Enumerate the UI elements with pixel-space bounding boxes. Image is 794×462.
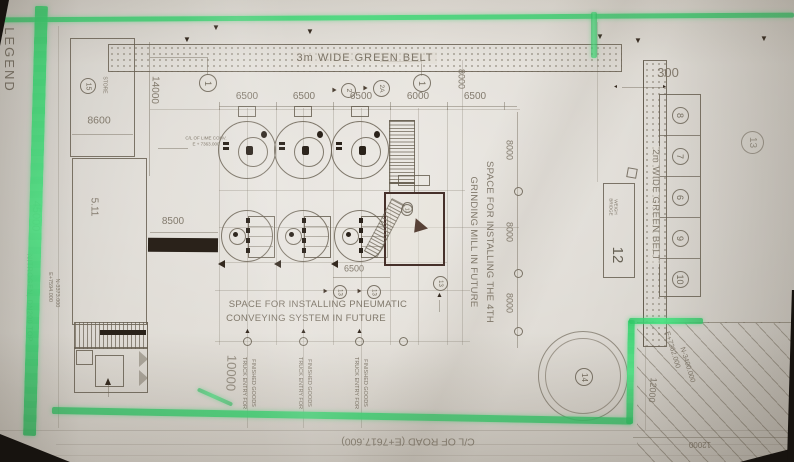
dimension-node: [243, 337, 252, 346]
mill-feed-box: [238, 106, 256, 117]
boundary-highlight-step-horizontal: [629, 318, 703, 324]
pneumatic-space-line1: SPACE FOR INSTALLING PNEUMATIC: [229, 300, 407, 310]
tag-label: 13: [400, 205, 415, 215]
boundary-highlight-top: [0, 13, 794, 23]
dimension-node: [355, 337, 364, 346]
mill-inner-circle: [294, 137, 324, 167]
equipment-skid: [248, 216, 275, 258]
grid-line: [150, 109, 520, 110]
tag-label: 13: [433, 277, 448, 290]
skid-mount: [302, 238, 306, 243]
skid-mount: [359, 228, 363, 233]
dimension-line: [150, 232, 218, 233]
dimension-tick: [390, 102, 391, 110]
plot-cell-number: 9: [672, 230, 689, 247]
dim-8500: 8500: [162, 217, 184, 228]
dim-bay: 6500: [350, 92, 372, 103]
green-belt-right-label: 2m WIDE GREEN BELT: [650, 146, 660, 264]
conveyor-centerline-label: C/L OF LIME CONV.: [185, 137, 226, 142]
tag-bubble: 13: [741, 131, 764, 154]
mill-nozzle: [317, 131, 323, 138]
dim-8000: 8000: [504, 222, 513, 242]
mill-feed-mark: [279, 142, 285, 145]
skid-mount: [359, 248, 363, 253]
future-mill-space-line2: GRINDING MILL IN FUTURE: [468, 176, 478, 307]
dimension-node: [514, 187, 523, 196]
grid-line: [462, 60, 463, 345]
dimension-arrow-icon: ▼: [212, 24, 220, 32]
flow-arrow-icon: [331, 260, 338, 268]
dim-8600: 8600: [87, 115, 110, 126]
boundary-highlight-step-vertical: [626, 320, 635, 424]
dimension-node: [514, 269, 523, 278]
dimension-line: [633, 437, 792, 438]
tag-bubble: 13: [333, 285, 347, 299]
grid-bubble-label: 1: [201, 76, 216, 91]
tank-number: 14: [577, 370, 592, 385]
truck-arrow-icon: ▲: [300, 328, 307, 335]
dimension-arrow-icon: ▼: [306, 28, 314, 36]
tag-bubble: 13: [401, 204, 413, 216]
dim-6500-bottom: 6500: [344, 264, 364, 273]
mill-bay-1: [216, 120, 278, 300]
leader-line: [158, 148, 188, 149]
truck-entry-label: FINISHED GOODS: [249, 359, 255, 407]
skid-mount: [246, 218, 250, 223]
door-swing-icon: [139, 370, 148, 386]
equipment-skid: [304, 216, 331, 258]
dim-bay: 6500: [236, 92, 258, 103]
section-arrow-icon: [363, 86, 367, 91]
tag-arrow-icon: [324, 289, 328, 293]
store-number: 15: [81, 79, 96, 93]
plot-cell: 9: [660, 218, 700, 259]
conveyor-gallery: [148, 238, 218, 253]
coordinate-east-left: E+7594.000: [46, 272, 52, 302]
conveyor-centerline-elev: E + 7363.000: [193, 143, 220, 148]
plot-cell-number: 10: [672, 271, 689, 288]
weigh-bridge-outline: [603, 183, 635, 278]
skid-mount: [246, 238, 250, 243]
truck-entry-label: FINISHED GOODS: [305, 359, 311, 407]
grid-bubble: 1: [199, 74, 217, 92]
dim-8000: 8000: [456, 69, 465, 89]
mill-feed-mark: [279, 147, 285, 150]
photo-corner-dark: [0, 434, 70, 462]
dimension-tick: [333, 102, 334, 110]
section-arrow-icon: [332, 88, 336, 93]
tag-label: 13: [333, 286, 348, 298]
section-marker: 2A: [373, 80, 390, 97]
door-swing-icon: [139, 351, 148, 367]
stair-landing-bar: [100, 330, 146, 335]
dimension-tick: [504, 102, 505, 110]
mill-feed-mark: [223, 147, 229, 150]
dim-14000: 14000: [148, 76, 159, 104]
dim-12000: 12000: [646, 377, 658, 403]
truck-entry-label: TRUCK ENTRY FOR: [296, 357, 302, 409]
plot-cell: 10: [660, 259, 700, 299]
dimension-arrow-icon: ▼: [596, 33, 604, 41]
plot-cell-number: 6: [672, 189, 689, 206]
weigh-bridge-word2: BRIDGE: [608, 198, 613, 215]
dimension-tick: [447, 102, 448, 110]
staircase: [74, 322, 148, 349]
dim-bay: 6500: [293, 92, 315, 103]
tank-outer-circle: 14: [538, 331, 628, 421]
mill-motor: [302, 146, 309, 155]
tag-arrow-icon: ▲: [436, 292, 443, 299]
truck-arrow-icon: ▲: [356, 328, 363, 335]
room-number: 5.11: [88, 198, 99, 217]
small-room: [76, 350, 93, 365]
dim-10000: 10000: [224, 355, 239, 392]
leader-line: [439, 300, 440, 312]
dimension-arrow-icon: ▼: [183, 36, 191, 44]
dimension-arrow-icon: ▸: [663, 84, 666, 90]
road-edge-line: [0, 455, 794, 456]
tag-bubble: 13: [367, 285, 381, 299]
mill-feed-box: [351, 106, 369, 117]
plot-cell-number: 7: [672, 148, 689, 165]
dim-bay: 6000: [407, 92, 429, 103]
tag-label: 13: [745, 135, 760, 150]
mill-motor: [359, 146, 366, 155]
platform: [398, 175, 430, 186]
dimension-line: [517, 112, 518, 348]
flow-arrow-icon: [105, 378, 111, 385]
road-centerline-label: C/L OF ROAD (E+7617.600): [341, 435, 475, 446]
plot-cell: 8: [660, 95, 700, 136]
plot-cell: 7: [660, 136, 700, 177]
section-marker-label: 2A: [374, 81, 389, 96]
dimension-tick: [276, 102, 277, 110]
dimension-arrow-icon: ◂: [614, 84, 617, 90]
mill-inner-circle: [351, 137, 381, 167]
plot-cell: 6: [660, 177, 700, 218]
skid-mount: [246, 228, 250, 233]
mill-nozzle: [261, 131, 267, 138]
skid-mount: [246, 248, 250, 253]
weigh-bridge-number: 12: [609, 247, 625, 264]
truck-entry-label: TRUCK ENTRY FOR: [240, 357, 246, 409]
building-511: [72, 158, 147, 325]
dimension-tick: [219, 102, 220, 110]
green-belt-top-band: 3m WIDE GREEN BELT: [108, 44, 622, 72]
store-label: STORE: [101, 76, 106, 93]
dim-bay: 6500: [464, 92, 486, 103]
classifier-hub: [342, 228, 359, 245]
dimension-arrow-icon: ▼: [760, 35, 768, 43]
tag-bubble: 13: [433, 276, 448, 291]
mill-building-room: [384, 192, 445, 266]
weigh-bridge-label: WEIGH BRIDGE: [608, 198, 617, 215]
future-mill-space-line1: SPACE FOR INSTALLING THE 4TH: [484, 161, 494, 323]
dim-12000-road: 12000: [689, 440, 711, 448]
dimension-node: [514, 327, 523, 336]
skid-mount: [359, 238, 363, 243]
green-belt-top-label: 3m WIDE GREEN BELT: [293, 52, 438, 64]
truck-entry-label: FINISHED GOODS: [361, 359, 367, 407]
mill-feed-box: [294, 106, 312, 117]
mill-nozzle: [374, 131, 380, 138]
mill-feed-mark: [223, 142, 229, 145]
truck-entry-label: TRUCK ENTRY FOR: [352, 357, 358, 409]
classifier-center: [346, 232, 351, 237]
dimension-node: [299, 337, 308, 346]
plot-cells: 8 7 6 9 10: [659, 94, 701, 297]
grid-bubble: 1: [413, 74, 431, 92]
tag-label: 13: [367, 286, 382, 298]
left-boundary-line: [58, 26, 59, 428]
boundary-highlight-left: [23, 6, 48, 436]
dim-8000: 8000: [504, 293, 513, 313]
gate-mark: [626, 167, 638, 179]
store-number-bubble: 15: [80, 78, 96, 94]
flow-arrow-icon: [218, 260, 225, 268]
plot-cell-number: 8: [672, 107, 689, 124]
tag-arrow-icon: [358, 289, 362, 293]
mill-feed-mark: [336, 142, 342, 145]
dimension-arrow-icon: ▼: [634, 37, 642, 45]
skid-mount: [302, 218, 306, 223]
mill-bay-2: [272, 120, 334, 300]
flow-arrow-icon: [274, 260, 281, 268]
boundary-highlight-bottom: [52, 407, 632, 425]
mill-motor: [246, 146, 253, 155]
truck-arrow-icon: ▲: [244, 328, 251, 335]
classifier-hub: [229, 228, 246, 245]
grid-line: [215, 341, 470, 342]
legend-title: LEGEND: [2, 27, 16, 92]
chute-icon: [408, 218, 428, 237]
grid-line: [645, 345, 646, 430]
classifier-hub: [285, 228, 302, 245]
road-edge-line: [0, 430, 794, 431]
mill-feed-mark: [336, 147, 342, 150]
dimension-node: [399, 337, 408, 346]
classifier-center: [289, 232, 294, 237]
classifier-center: [233, 232, 238, 237]
site-plan-photo: LEGEND 45000 NITROGEN, DN200 TOP E+7594.…: [0, 0, 794, 462]
skid-mount: [302, 228, 306, 233]
skid-mount: [359, 218, 363, 223]
dim-300: 300: [657, 66, 679, 80]
grid-bubble-label: 1: [415, 76, 430, 91]
coordinate-north-left: N-3373.000: [53, 279, 59, 308]
dim-8000: 8000: [504, 140, 513, 160]
store-building: [70, 38, 135, 157]
pneumatic-space-line2: CONVEYING SYSTEM IN FUTURE: [226, 314, 386, 324]
boundary-highlight-top-right: [591, 12, 597, 58]
tank-number-bubble: 14: [575, 368, 593, 386]
skid-mount: [302, 248, 306, 253]
mill-inner-circle: [238, 137, 268, 167]
